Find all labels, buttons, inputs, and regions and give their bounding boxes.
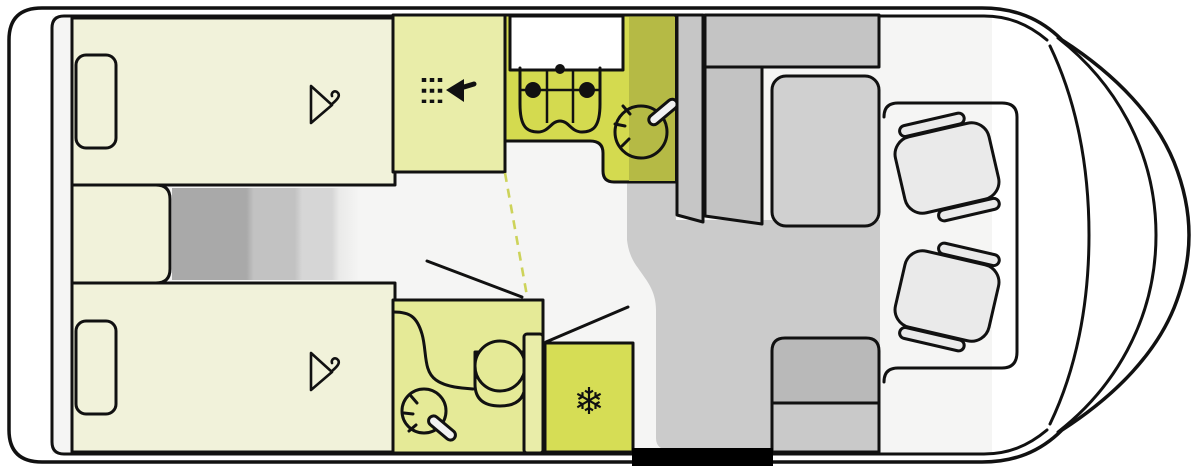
toilet-icon [475,341,525,406]
tall-cabinet [677,15,703,222]
entrance-threshold [632,448,773,466]
bed-pillow-top [76,55,116,148]
hood-contour-line [1058,38,1156,432]
motorhome-floorplan: ❄ [0,0,1200,470]
windshield-contour-line [1050,46,1089,424]
entry-bench-back [772,338,879,403]
bed-step-gradient [172,188,358,280]
bed-cabinet-middle [72,185,170,283]
shower-room [393,15,505,172]
dinette-bench-wall [705,15,879,67]
bed-pillow-bottom [76,321,116,414]
bathroom-door-panel [524,334,543,453]
rear-bed-top [72,18,395,185]
dinette-bench-side [705,67,762,224]
rear-bed-bottom [72,283,395,452]
entry-bench-seat [772,403,879,452]
snowflake-icon: ❄ [573,380,604,423]
dinette-table [772,76,879,226]
kitchen-worktop [510,16,623,70]
